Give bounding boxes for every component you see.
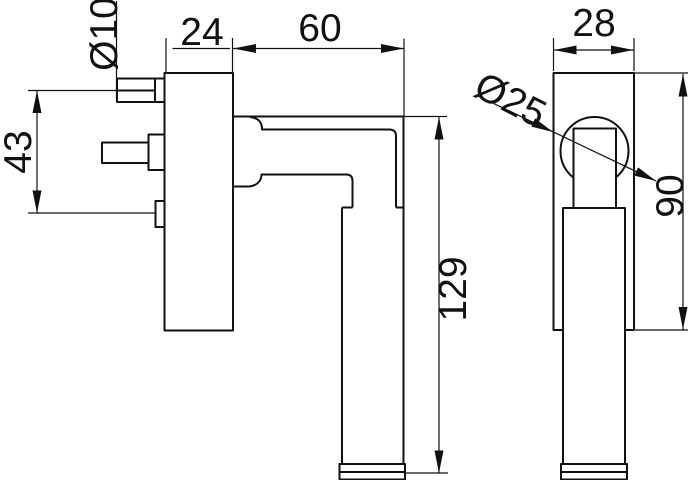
front-bottom-screw: [156, 201, 165, 227]
dim-label-side-plate-width: 28: [572, 2, 615, 45]
dim-label-handle-length: 129: [432, 256, 475, 321]
front-grip-end-ring: [340, 464, 406, 472]
dimension-28: 28: [554, 2, 635, 71]
dim-label-handle-reach: 60: [298, 7, 341, 50]
handle-technical-drawing: 24 60 Ø10 43 129 28: [0, 0, 692, 480]
front-top-screw: [117, 79, 165, 103]
front-backplate: [165, 73, 234, 331]
front-spindle: [102, 135, 165, 171]
dimension-43: 43: [0, 91, 156, 214]
side-grip-end-ring: [561, 464, 627, 472]
dimension-24: 24: [166, 11, 233, 72]
dim-label-plate-height: 90: [649, 174, 692, 217]
side-grip: [563, 208, 625, 464]
side-grip-end-cap: [561, 472, 627, 480]
front-grip-end-cap: [340, 472, 406, 480]
front-view: [102, 73, 405, 480]
dim-label-front-plate-width: 24: [180, 11, 223, 54]
technical-drawing-page: 24 60 Ø10 43 129 28: [0, 0, 692, 480]
dimension-90: 90: [634, 73, 692, 330]
dimension-60: 60: [233, 7, 404, 116]
dim-label-screw-diameter: Ø10: [83, 0, 126, 71]
dimension-d10: Ø10: [83, 0, 126, 102]
dim-label-screw-spacing: 43: [0, 130, 40, 173]
dimension-129: 129: [404, 117, 476, 474]
front-handle: [233, 117, 405, 480]
side-view: [554, 73, 635, 480]
side-neck: [574, 129, 617, 209]
